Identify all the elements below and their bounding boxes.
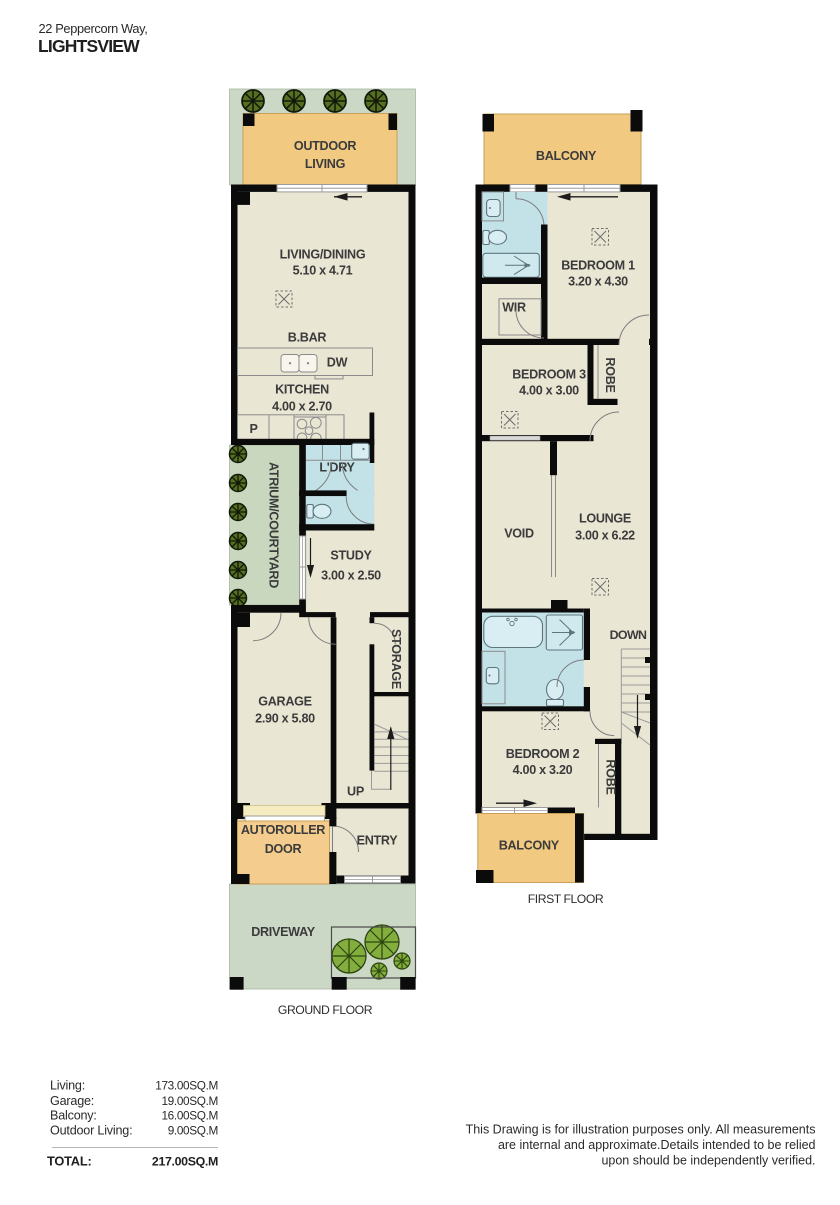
svg-text:LIVING: LIVING bbox=[305, 157, 346, 171]
svg-text:STUDY: STUDY bbox=[330, 549, 372, 563]
svg-text:16.00SQ.M: 16.00SQ.M bbox=[161, 1109, 218, 1123]
svg-text:3.00 x 2.50: 3.00 x 2.50 bbox=[321, 569, 381, 583]
svg-text:BALCONY: BALCONY bbox=[536, 149, 597, 163]
svg-text:BEDROOM 3: BEDROOM 3 bbox=[512, 368, 586, 382]
svg-text:OUTDOOR: OUTDOOR bbox=[294, 139, 356, 153]
svg-text:TOTAL:: TOTAL: bbox=[47, 1154, 92, 1169]
svg-text:ENTRY: ENTRY bbox=[357, 834, 399, 848]
svg-text:BALCONY: BALCONY bbox=[499, 839, 560, 853]
svg-text:BEDROOM 2: BEDROOM 2 bbox=[506, 747, 580, 761]
svg-text:2.90 x 5.80: 2.90 x 5.80 bbox=[255, 712, 315, 726]
svg-text:This Drawing is for illustrati: This Drawing is for illustration purpose… bbox=[466, 1123, 816, 1137]
svg-text:4.00 x 3.20: 4.00 x 3.20 bbox=[513, 763, 573, 777]
svg-text:VOID: VOID bbox=[504, 527, 534, 541]
svg-text:ATRIUM/COURTYARD: ATRIUM/COURTYARD bbox=[267, 462, 281, 588]
svg-text:3.00 x 6.22: 3.00 x 6.22 bbox=[575, 529, 635, 543]
svg-text:5.10 x 4.71: 5.10 x 4.71 bbox=[293, 264, 353, 278]
svg-text:3.20 x 4.30: 3.20 x 4.30 bbox=[568, 275, 628, 289]
svg-text:DOWN: DOWN bbox=[610, 628, 647, 642]
svg-text:AUTOROLLER: AUTOROLLER bbox=[241, 823, 325, 837]
svg-text:UP: UP bbox=[347, 785, 364, 799]
svg-text:DRIVEWAY: DRIVEWAY bbox=[251, 925, 316, 939]
svg-text:KITCHEN: KITCHEN bbox=[275, 383, 329, 397]
svg-text:ROBE: ROBE bbox=[604, 759, 618, 794]
svg-text:GARAGE: GARAGE bbox=[258, 695, 311, 709]
svg-text:upon should be independently v: upon should be independently verified. bbox=[601, 1154, 815, 1168]
svg-text:WIR: WIR bbox=[502, 301, 526, 315]
svg-text:DOOR: DOOR bbox=[265, 842, 302, 856]
svg-text:4.00 x 3.00: 4.00 x 3.00 bbox=[519, 384, 579, 398]
svg-text:DW: DW bbox=[327, 356, 348, 370]
svg-text:ROBE: ROBE bbox=[603, 357, 617, 392]
svg-text:are internal and approximate.D: are internal and approximate.Details int… bbox=[498, 1138, 816, 1152]
svg-text:BEDROOM 1: BEDROOM 1 bbox=[561, 259, 635, 273]
svg-text:FIRST FLOOR: FIRST FLOOR bbox=[528, 892, 604, 906]
svg-text:22 Peppercorn Way,: 22 Peppercorn Way, bbox=[39, 21, 148, 36]
svg-text:GROUND FLOOR: GROUND FLOOR bbox=[278, 1003, 373, 1017]
svg-text:Living:: Living: bbox=[50, 1079, 85, 1093]
svg-text:173.00SQ.M: 173.00SQ.M bbox=[155, 1079, 218, 1093]
svg-text:P: P bbox=[249, 422, 257, 436]
svg-text:LOUNGE: LOUNGE bbox=[579, 512, 631, 526]
svg-text:LIGHTSVIEW: LIGHTSVIEW bbox=[38, 36, 140, 56]
svg-text:9.00SQ.M: 9.00SQ.M bbox=[168, 1124, 218, 1138]
svg-text:B.BAR: B.BAR bbox=[288, 331, 327, 345]
svg-text:STORAGE: STORAGE bbox=[389, 629, 403, 689]
svg-text:Garage:: Garage: bbox=[50, 1094, 94, 1108]
svg-text:Outdoor Living:: Outdoor Living: bbox=[50, 1124, 132, 1138]
svg-text:Balcony:: Balcony: bbox=[50, 1109, 97, 1123]
svg-text:217.00SQ.M: 217.00SQ.M bbox=[152, 1155, 218, 1169]
svg-text:L'DRY: L'DRY bbox=[319, 461, 355, 475]
svg-text:LIVING/DINING: LIVING/DINING bbox=[280, 248, 366, 262]
svg-text:4.00 x 2.70: 4.00 x 2.70 bbox=[272, 400, 332, 414]
svg-text:19.00SQ.M: 19.00SQ.M bbox=[161, 1094, 218, 1108]
